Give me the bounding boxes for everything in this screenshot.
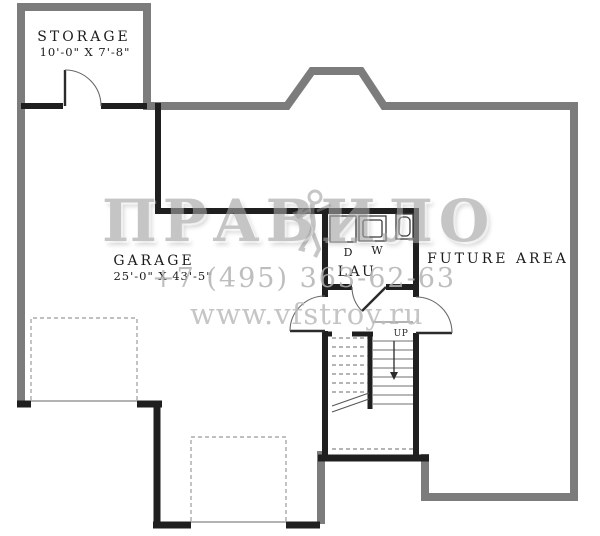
- washer-box-inner: [363, 220, 382, 237]
- laundry-label: LAU: [338, 264, 377, 280]
- floor-plan-page: UP D W: [0, 0, 600, 536]
- laundry-door: [352, 287, 386, 311]
- laundry-fixtures: [330, 214, 413, 242]
- garage-label: GARAGE: [113, 253, 194, 269]
- top-bay-right-and-bottom-exterior-wall: [143, 71, 574, 497]
- laundry-tub-inner: [399, 217, 410, 236]
- room-labels: STORAGE 10'-0" X 7'-8" GARAGE 25'-0" X 4…: [37, 29, 569, 283]
- stairs-up-label: UP: [394, 329, 409, 339]
- stair-direction-arrow: [390, 341, 398, 380]
- storage-and-left-exterior-wall: [21, 7, 147, 404]
- washer-letter: W: [371, 244, 383, 257]
- storage-label: STORAGE: [37, 29, 130, 45]
- dryer-box: [330, 216, 356, 242]
- arrow-head-icon: [390, 372, 398, 380]
- storage-door: [65, 70, 101, 106]
- storage-dims: 10'-0" X 7'-8": [40, 45, 131, 59]
- dryer-letter: D: [344, 246, 353, 259]
- floor-plan-drawing: UP D W: [0, 0, 600, 536]
- interior-walls: [17, 103, 429, 526]
- garage-door-left-overhead-dashed: [31, 318, 137, 400]
- garage-door-bottom-overhead-dashed: [191, 437, 286, 521]
- garage-dims: 25'-0" X 43'-5": [113, 269, 212, 283]
- future-area-door: [416, 297, 452, 333]
- future-area-label: FUTURE AREA: [427, 251, 569, 267]
- stair-break-lines: [332, 393, 369, 412]
- garage-hall-door: [290, 296, 325, 331]
